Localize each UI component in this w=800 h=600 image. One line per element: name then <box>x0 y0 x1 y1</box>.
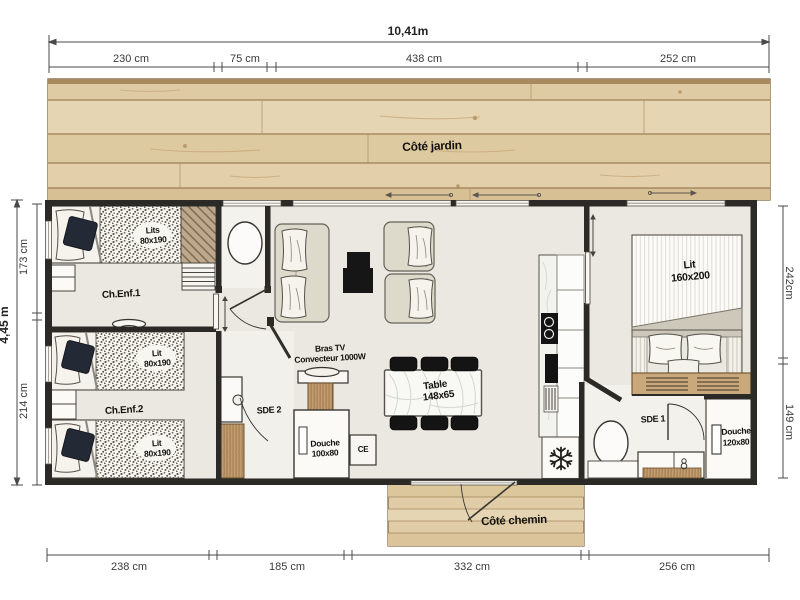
svg-text:10,41m: 10,41m <box>388 24 429 38</box>
svg-text:4,45 m: 4,45 m <box>0 306 11 343</box>
svg-text:252 cm: 252 cm <box>660 53 696 65</box>
svg-text:438 cm: 438 cm <box>406 53 442 65</box>
svg-text:SDE 2: SDE 2 <box>256 404 281 415</box>
svg-text:Lit: Lit <box>152 438 163 449</box>
svg-text:SDE 1: SDE 1 <box>640 413 665 424</box>
svg-text:214 cm: 214 cm <box>18 383 30 419</box>
svg-text:Douche: Douche <box>721 425 751 437</box>
svg-text:238 cm: 238 cm <box>111 561 147 573</box>
svg-text:173 cm: 173 cm <box>18 239 30 275</box>
svg-text:Lit: Lit <box>683 258 697 271</box>
svg-text:256 cm: 256 cm <box>659 561 695 573</box>
svg-text:120x80: 120x80 <box>722 436 750 447</box>
svg-text:149 cm: 149 cm <box>783 404 795 440</box>
svg-text:Côté chemin: Côté chemin <box>481 514 547 528</box>
svg-text:75 cm: 75 cm <box>230 53 260 65</box>
svg-text:80x190: 80x190 <box>140 234 168 246</box>
svg-text:242cm: 242cm <box>783 266 795 299</box>
svg-text:CE: CE <box>358 445 369 454</box>
svg-text:80x190: 80x190 <box>144 357 172 369</box>
svg-text:185 cm: 185 cm <box>269 561 305 573</box>
svg-text:Côté jardin: Côté jardin <box>402 138 462 154</box>
svg-text:332 cm: 332 cm <box>454 561 490 573</box>
svg-text:Ch.Enf.1: Ch.Enf.1 <box>102 288 141 301</box>
svg-text:230 cm: 230 cm <box>113 53 149 65</box>
svg-text:80x190: 80x190 <box>144 447 172 459</box>
svg-text:Lit: Lit <box>152 348 163 359</box>
svg-text:100x80: 100x80 <box>311 447 339 458</box>
svg-text:Ch.Enf.2: Ch.Enf.2 <box>105 404 144 417</box>
